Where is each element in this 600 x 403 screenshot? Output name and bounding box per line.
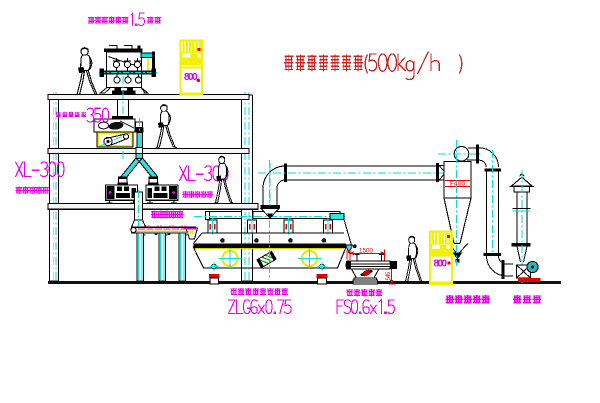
svg-text:1500: 1500: [359, 247, 374, 254]
svg-text:F400: F400: [450, 181, 465, 188]
svg-text:545: 545: [385, 271, 392, 281]
svg-text:800: 800: [434, 259, 448, 270]
svg-text:800: 800: [184, 72, 198, 83]
